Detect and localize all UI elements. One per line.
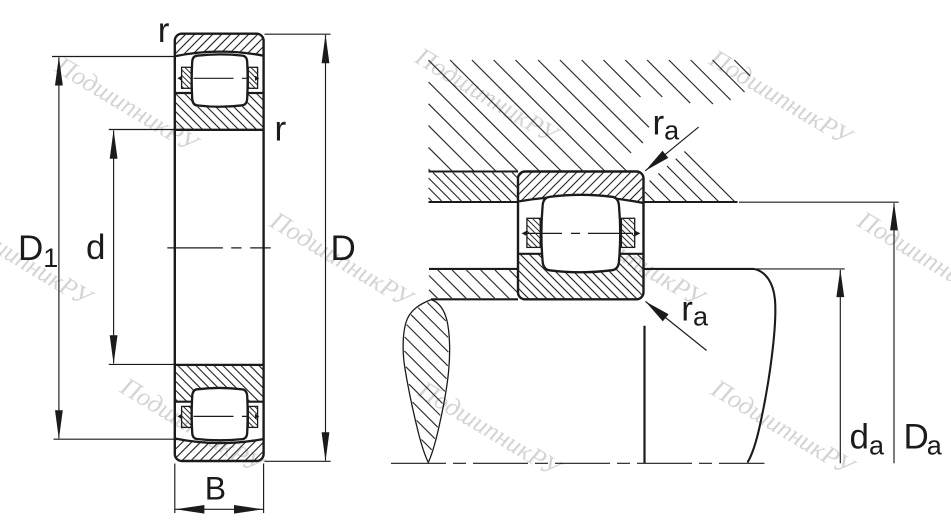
svg-text:D: D bbox=[331, 229, 356, 268]
svg-text:d: d bbox=[86, 228, 105, 267]
svg-text:r: r bbox=[158, 11, 170, 50]
svg-text:B: B bbox=[205, 471, 226, 507]
svg-text:r: r bbox=[275, 109, 287, 148]
